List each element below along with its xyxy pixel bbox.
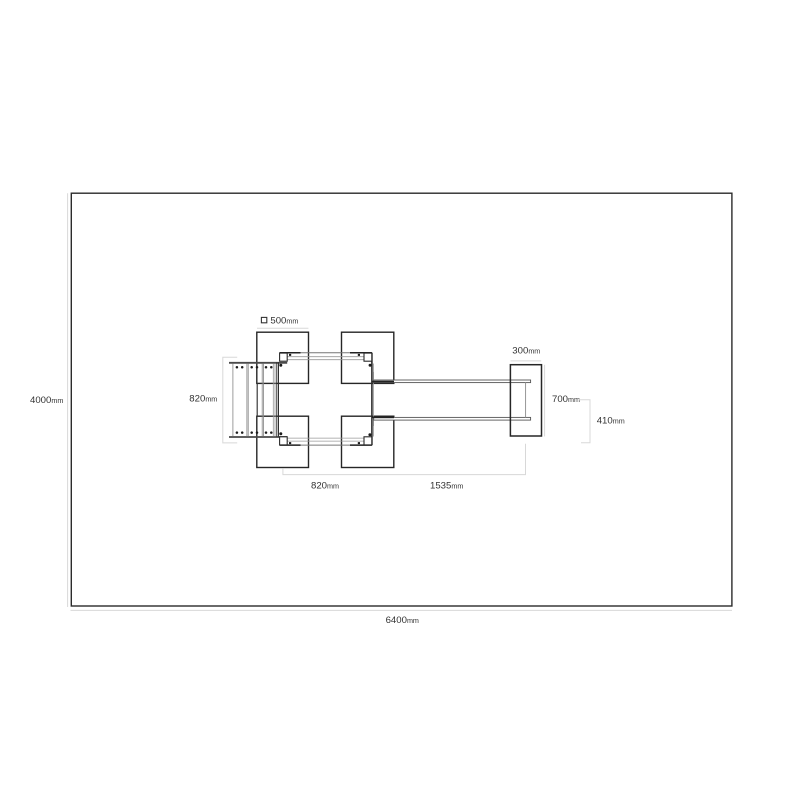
svg-text:820mm: 820mm [189,394,217,405]
svg-text:6400mm: 6400mm [386,615,419,626]
svg-text:1535mm: 1535mm [430,481,463,492]
svg-text:700mm: 700mm [552,394,580,405]
svg-text:820mm: 820mm [311,481,339,492]
svg-text:410mm: 410mm [597,416,625,427]
svg-text:500mm: 500mm [270,315,298,326]
svg-text:300mm: 300mm [512,346,540,357]
svg-text:4000mm: 4000mm [30,395,63,406]
